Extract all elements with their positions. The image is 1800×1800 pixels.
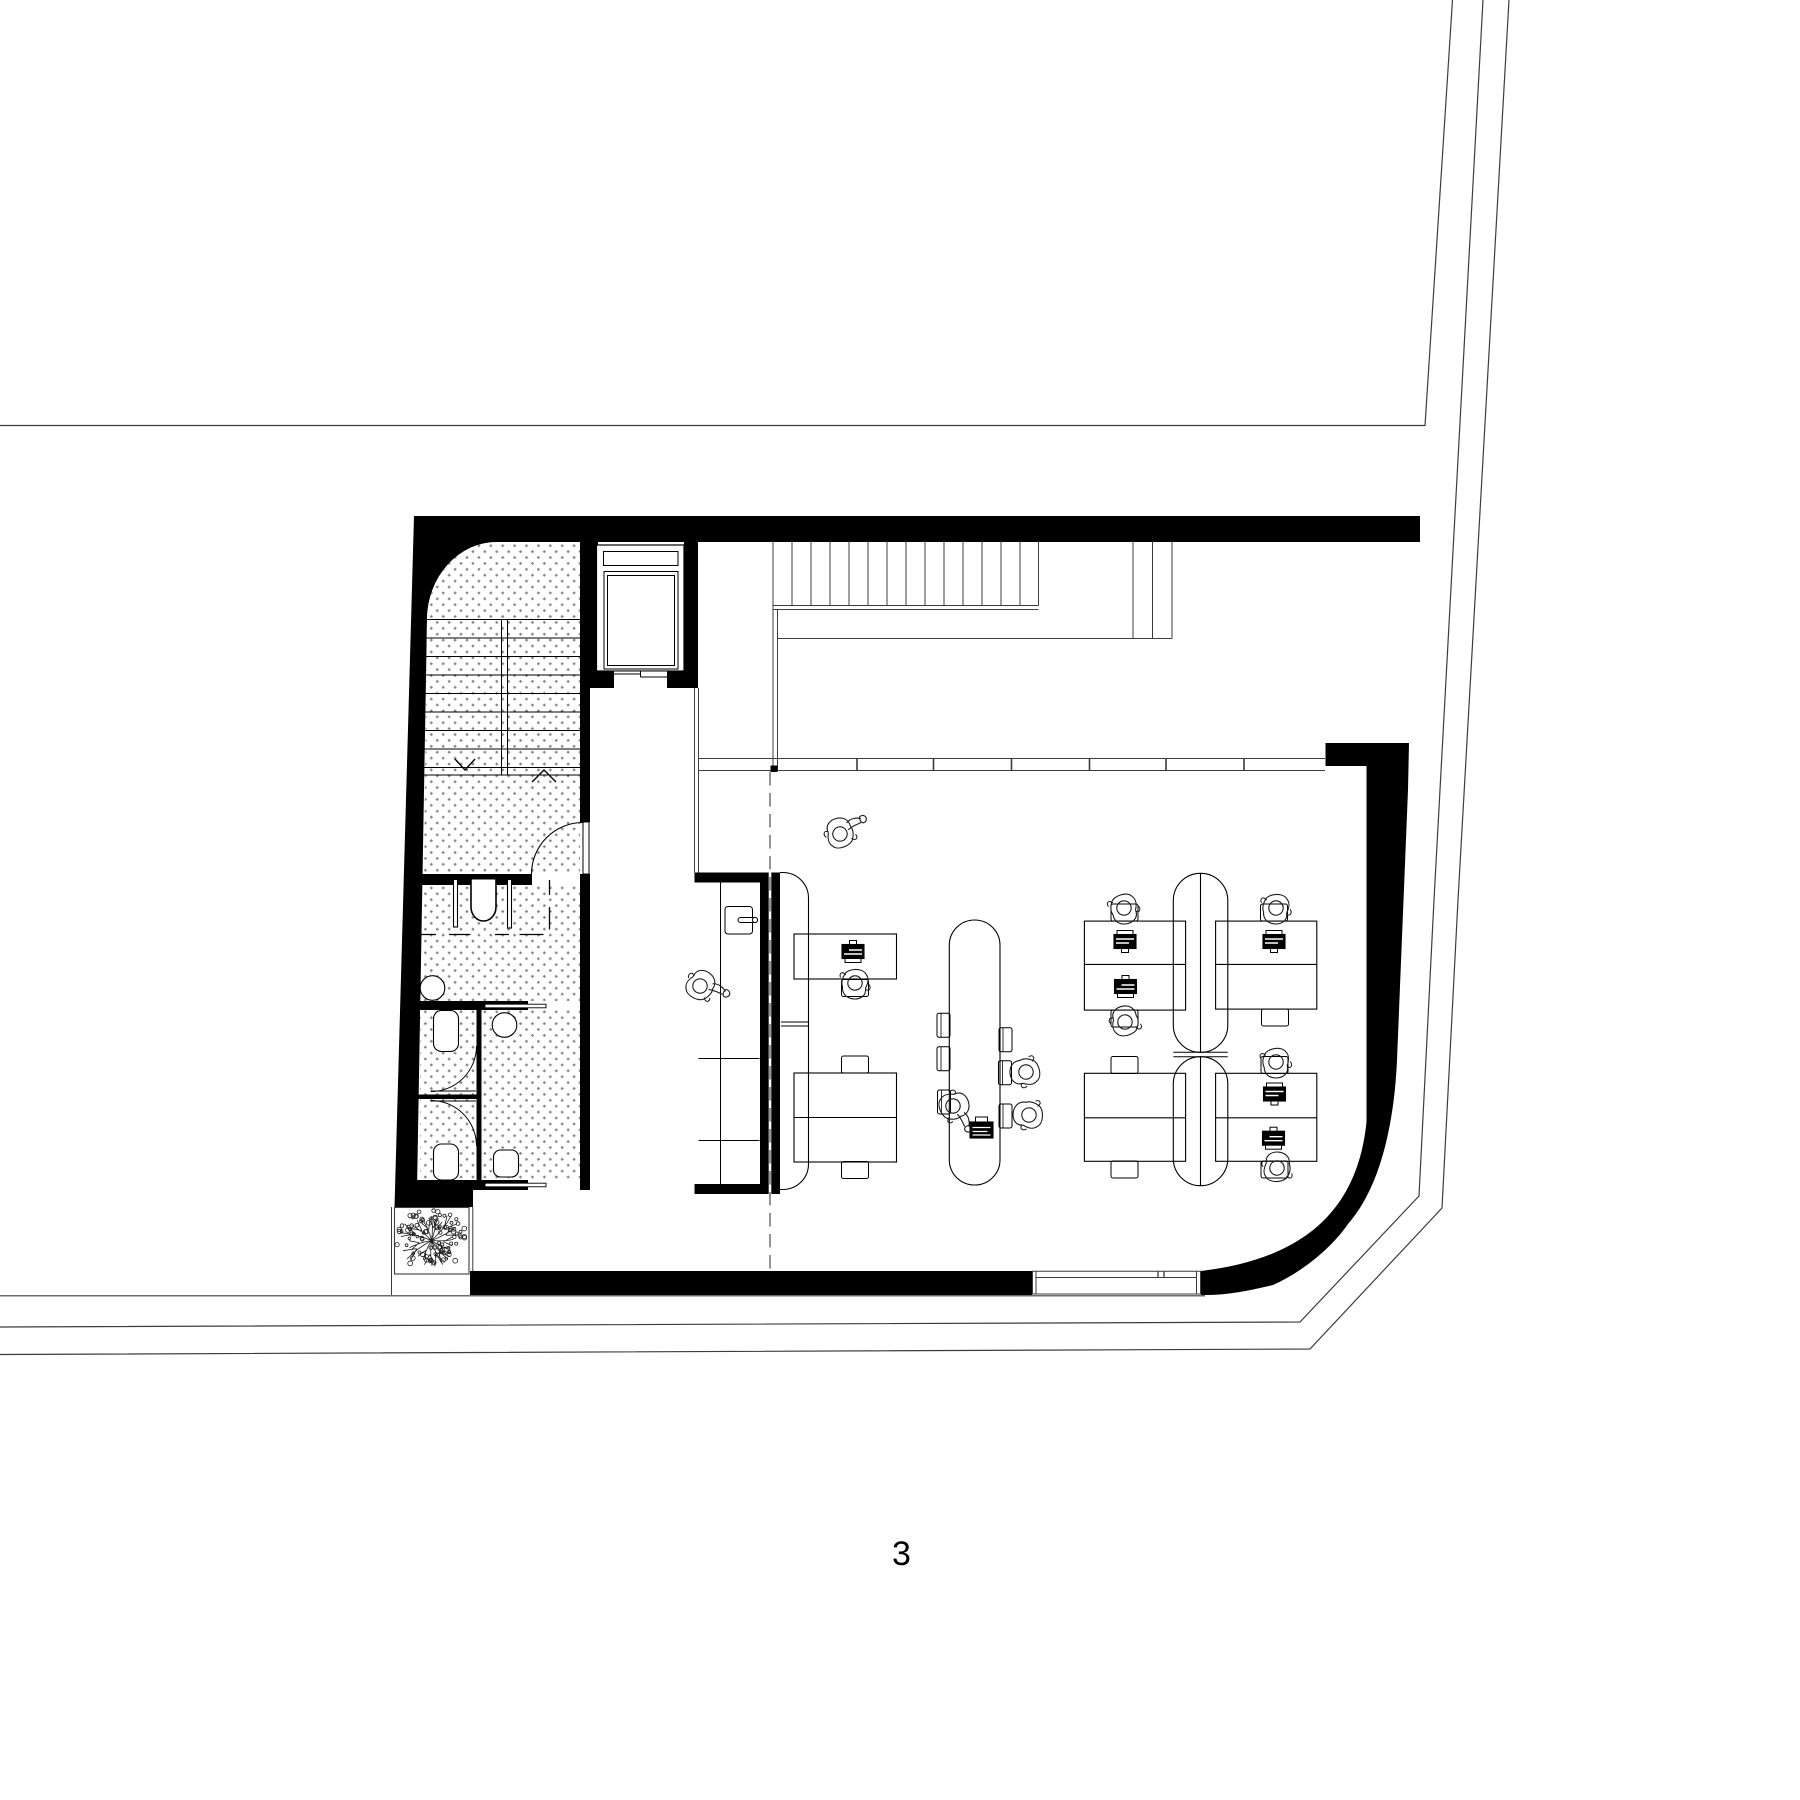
svg-text:3: 3: [892, 1535, 911, 1573]
